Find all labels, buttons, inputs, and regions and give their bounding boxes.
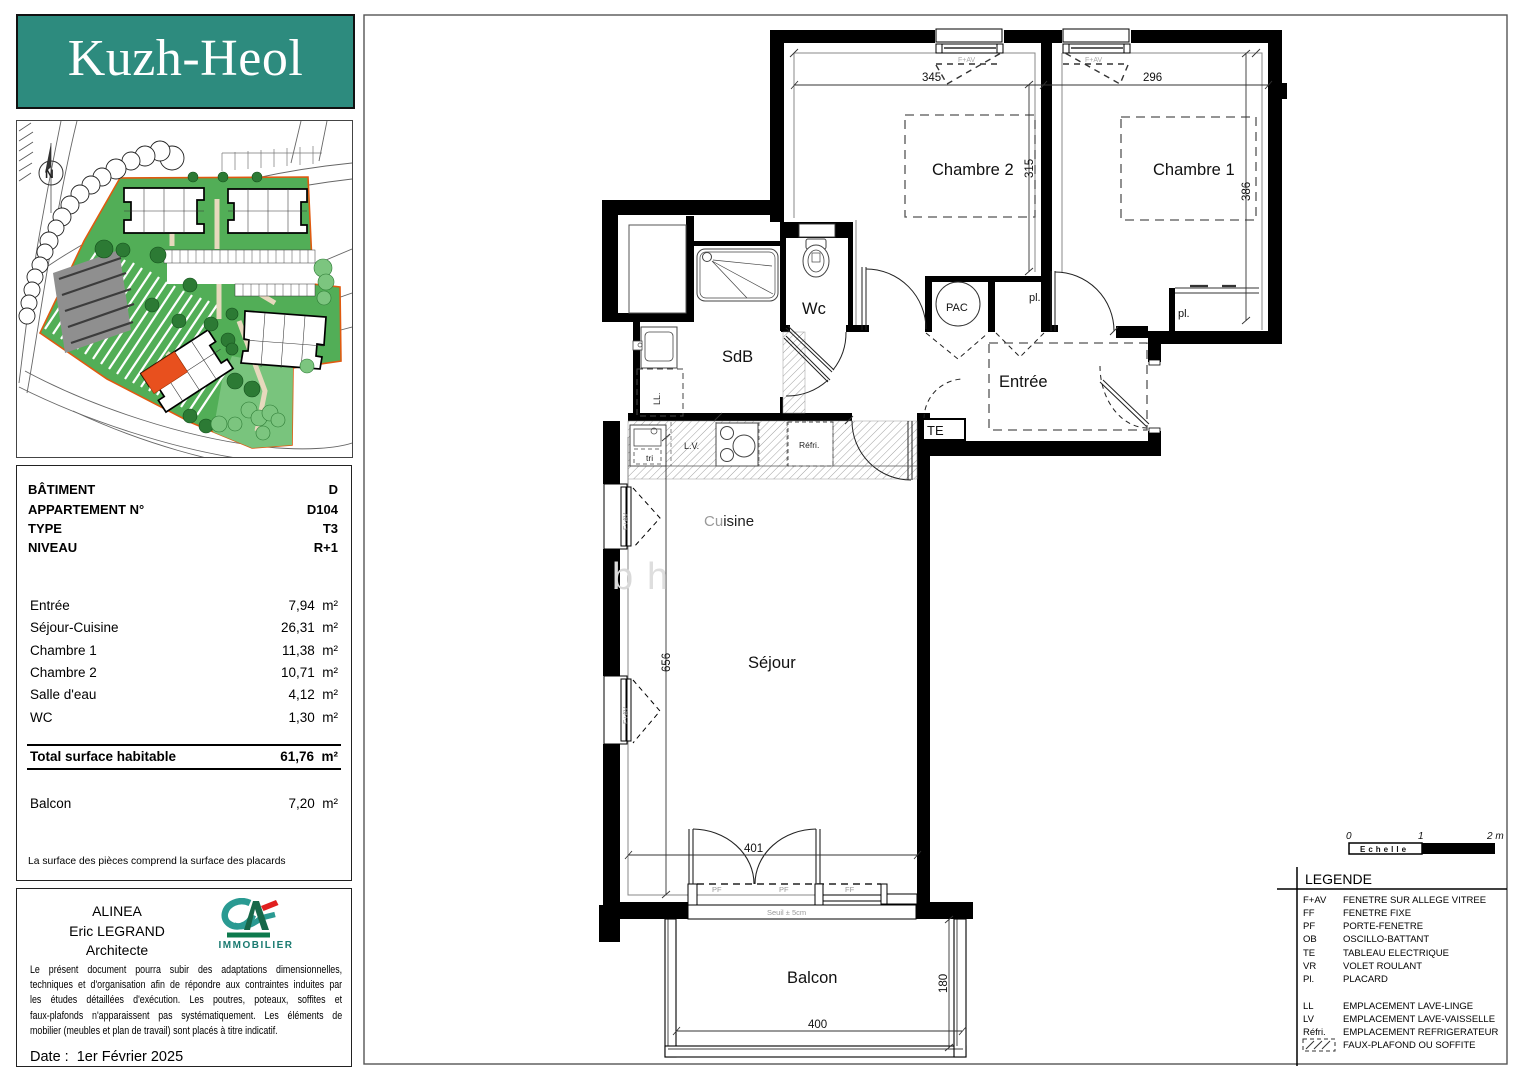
svg-text:Chambre 2: Chambre 2 <box>932 161 1014 179</box>
svg-text:SdB: SdB <box>722 348 753 366</box>
svg-text:PLACARD: PLACARD <box>1343 974 1388 985</box>
svg-text:pl.: pl. <box>1178 308 1190 320</box>
svg-text:PF: PF <box>712 885 722 894</box>
svg-text:Cuisine: Cuisine <box>704 513 754 530</box>
svg-text:Réfri.: Réfri. <box>799 440 819 450</box>
svg-text:PAC: PAC <box>946 302 968 314</box>
svg-text:F+AV: F+AV <box>1303 895 1327 906</box>
svg-text:pl.: pl. <box>1029 292 1041 304</box>
svg-text:Balcon: Balcon <box>787 969 837 987</box>
svg-text:TABLEAU ELECTRIQUE: TABLEAU ELECTRIQUE <box>1343 948 1449 959</box>
svg-text:PF: PF <box>779 885 789 894</box>
svg-text:OSCILLO-BATTANT: OSCILLO-BATTANT <box>1343 934 1429 945</box>
svg-text:Séjour: Séjour <box>748 654 796 672</box>
svg-text:VR: VR <box>1303 961 1316 972</box>
svg-text:FENETRE SUR ALLEGE VITREE: FENETRE SUR ALLEGE VITREE <box>1343 895 1486 906</box>
svg-text:Entrée: Entrée <box>999 373 1048 391</box>
svg-text:LEGENDE: LEGENDE <box>1305 871 1372 887</box>
svg-text:1: 1 <box>1418 831 1424 842</box>
svg-text:Chambre 1: Chambre 1 <box>1153 161 1235 179</box>
svg-text:EMPLACEMENT REFRIGERATEUR: EMPLACEMENT REFRIGERATEUR <box>1343 1027 1499 1038</box>
svg-text:LV: LV <box>1303 1014 1315 1025</box>
svg-text:OB: OB <box>1303 934 1317 945</box>
svg-text:tri: tri <box>646 453 653 463</box>
svg-text:401: 401 <box>744 843 763 855</box>
svg-text:TE: TE <box>927 423 944 438</box>
svg-text:b: b <box>612 556 633 598</box>
svg-text:Echelle: Echelle <box>1360 845 1409 854</box>
svg-text:Réfri.: Réfri. <box>1303 1027 1326 1038</box>
svg-text:656: 656 <box>661 653 673 672</box>
svg-text:180: 180 <box>938 974 950 993</box>
svg-text:h: h <box>647 556 668 598</box>
svg-text:F+AV: F+AV <box>623 512 630 530</box>
svg-text:345: 345 <box>922 72 941 84</box>
svg-text:FAUX-PLAFOND OU SOFFITE: FAUX-PLAFOND OU SOFFITE <box>1343 1040 1476 1051</box>
svg-text:FF: FF <box>845 885 855 894</box>
svg-text:VOLET ROULANT: VOLET ROULANT <box>1343 961 1422 972</box>
svg-text:Wc: Wc <box>802 300 826 318</box>
svg-text:PF: PF <box>1303 921 1315 932</box>
svg-text:386: 386 <box>1241 182 1253 201</box>
svg-text:296: 296 <box>1143 72 1162 84</box>
svg-text:2 m: 2 m <box>1486 831 1504 842</box>
svg-text:400: 400 <box>808 1019 827 1031</box>
svg-text:LL: LL <box>1303 1001 1314 1012</box>
svg-text:Pl.: Pl. <box>1303 974 1314 985</box>
svg-text:F+AV: F+AV <box>958 57 976 64</box>
svg-text:0: 0 <box>1346 831 1352 842</box>
svg-text:F+AV: F+AV <box>1085 57 1103 64</box>
svg-text:EMPLACEMENT LAVE-VAISSELLE: EMPLACEMENT LAVE-VAISSELLE <box>1343 1014 1495 1025</box>
svg-text:FENETRE FIXE: FENETRE FIXE <box>1343 908 1411 919</box>
svg-text:FF: FF <box>1303 908 1315 919</box>
svg-text:L.V.: L.V. <box>684 441 699 451</box>
svg-text:315: 315 <box>1024 159 1036 178</box>
svg-text:LL.: LL. <box>652 392 662 405</box>
svg-text:Seuil ± 5cm: Seuil ± 5cm <box>767 908 806 917</box>
svg-text:TE: TE <box>1303 948 1315 959</box>
svg-text:PORTE-FENETRE: PORTE-FENETRE <box>1343 921 1423 932</box>
svg-text:F+AV: F+AV <box>623 706 630 724</box>
svg-text:EMPLACEMENT LAVE-LINGE: EMPLACEMENT LAVE-LINGE <box>1343 1001 1473 1012</box>
